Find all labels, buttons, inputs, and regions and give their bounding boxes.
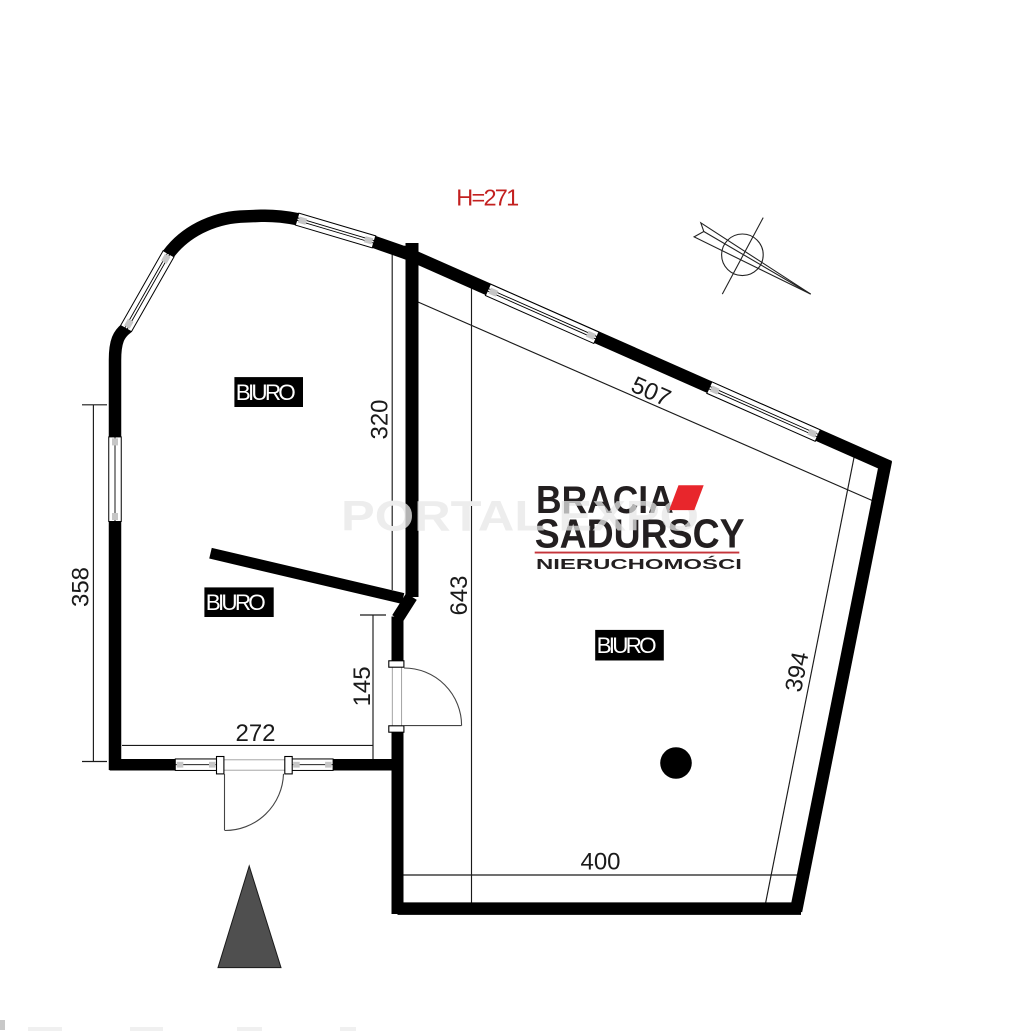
svg-text:BIURO: BIURO — [597, 633, 657, 658]
svg-text:145: 145 — [349, 666, 376, 706]
svg-text:507: 507 — [627, 371, 675, 412]
svg-text:BIURO: BIURO — [206, 590, 266, 615]
svg-text:H=271: H=271 — [456, 185, 519, 211]
svg-text:358: 358 — [68, 567, 95, 607]
svg-text:320: 320 — [367, 399, 394, 439]
svg-text:400: 400 — [580, 849, 620, 876]
svg-text:BIURO: BIURO — [236, 380, 296, 405]
svg-text:272: 272 — [235, 720, 275, 747]
svg-text:394: 394 — [780, 650, 814, 695]
svg-text:NIERUCHOMOŚCI: NIERUCHOMOŚCI — [536, 555, 742, 573]
svg-text:PORTAL EXPO: PORTAL EXPO — [341, 493, 699, 541]
svg-text:643: 643 — [446, 575, 473, 615]
